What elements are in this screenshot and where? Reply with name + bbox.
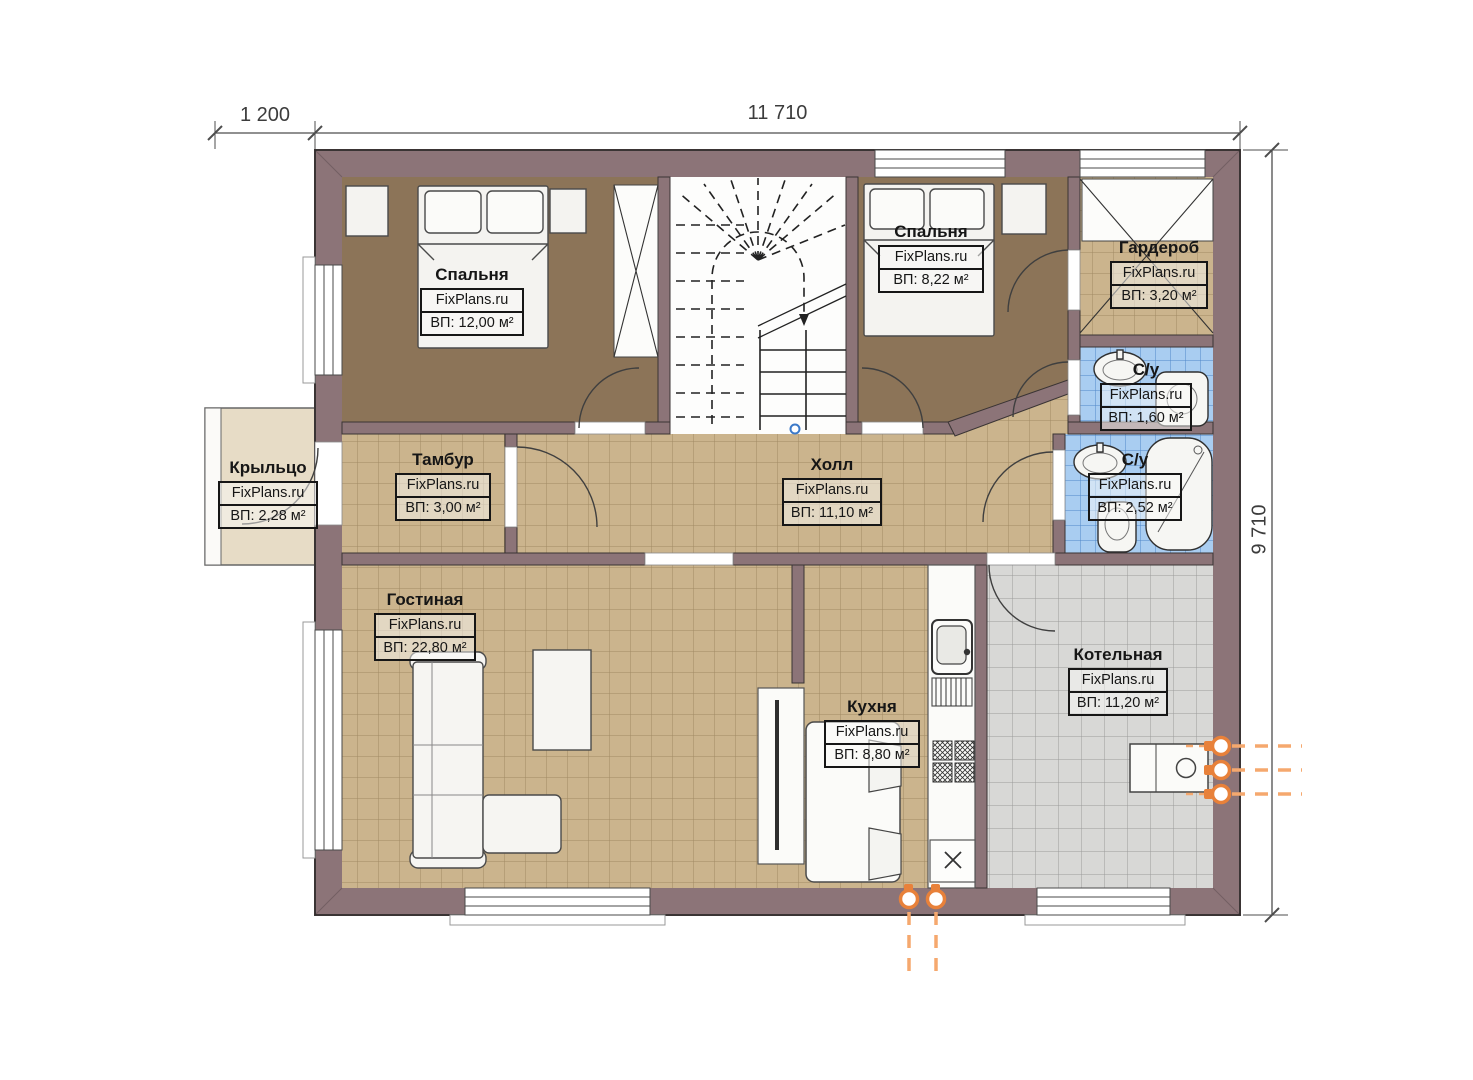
room-area: ВП: 3,20 м²	[1110, 284, 1208, 309]
room-label-bedroom-1: Спальня FixPlans.ru ВП: 12,00 м²	[420, 265, 524, 336]
dimension-top-main: 11 710	[315, 102, 1240, 125]
brand-watermark: FixPlans.ru	[878, 245, 984, 270]
room-name: Гостиная	[387, 590, 464, 610]
room-label-boiler: Котельная FixPlans.ru ВП: 11,20 м²	[1068, 645, 1168, 716]
room-label-bathroom-1: С/у FixPlans.ru ВП: 1,60 м²	[1100, 360, 1192, 431]
brand-watermark: FixPlans.ru	[824, 720, 920, 745]
room-label-vestibule: Тамбур FixPlans.ru ВП: 3,00 м²	[395, 450, 491, 521]
room-label-hall: Холл FixPlans.ru ВП: 11,10 м²	[782, 455, 882, 526]
room-label-living: Гостиная FixPlans.ru ВП: 22,80 м²	[374, 590, 476, 661]
room-name: Кухня	[847, 697, 897, 717]
room-name: Котельная	[1073, 645, 1162, 665]
brand-watermark: FixPlans.ru	[420, 288, 524, 313]
room-label-wardrobe: Гардероб FixPlans.ru ВП: 3,20 м²	[1110, 238, 1208, 309]
room-area: ВП: 11,20 м²	[1068, 691, 1168, 716]
room-label-bedroom-2: Спальня FixPlans.ru ВП: 8,22 м²	[878, 222, 984, 293]
room-area: ВП: 3,00 м²	[395, 496, 491, 521]
room-name: Крыльцо	[229, 458, 306, 478]
brand-watermark: FixPlans.ru	[1100, 383, 1192, 408]
room-area: ВП: 12,00 м²	[420, 311, 524, 336]
room-label-porch: Крыльцо FixPlans.ru ВП: 2,28 м²	[218, 458, 318, 529]
room-label-bathroom-2: С/у FixPlans.ru ВП: 2,52 м²	[1088, 450, 1182, 521]
room-area: ВП: 8,22 м²	[878, 268, 984, 293]
dimension-top-left: 1 200	[215, 104, 315, 127]
brand-watermark: FixPlans.ru	[1110, 261, 1208, 286]
floor-plan: 1 200 11 710 9 710 Спальня FixPlans.ru В…	[0, 0, 1473, 1080]
room-name: Спальня	[435, 265, 508, 285]
brand-watermark: FixPlans.ru	[374, 613, 476, 638]
room-name: С/у	[1122, 450, 1148, 470]
brand-watermark: FixPlans.ru	[1088, 473, 1182, 498]
room-name: Спальня	[894, 222, 967, 242]
room-label-kitchen: Кухня FixPlans.ru ВП: 8,80 м²	[824, 697, 920, 768]
brand-watermark: FixPlans.ru	[395, 473, 491, 498]
room-area: ВП: 8,80 м²	[824, 743, 920, 768]
room-name: Холл	[811, 455, 854, 475]
room-area: ВП: 2,28 м²	[218, 504, 318, 529]
brand-watermark: FixPlans.ru	[782, 478, 882, 503]
bedroom-1-closet	[614, 185, 658, 357]
room-name: Тамбур	[412, 450, 474, 470]
boiler-unit	[1130, 744, 1208, 792]
room-area: ВП: 22,80 м²	[374, 636, 476, 661]
room-name: Гардероб	[1119, 238, 1199, 258]
dimension-right-side: 9 710	[1249, 470, 1272, 590]
room-area: ВП: 2,52 м²	[1088, 496, 1182, 521]
room-area: ВП: 1,60 м²	[1100, 406, 1192, 431]
room-name: С/у	[1133, 360, 1159, 380]
brand-watermark: FixPlans.ru	[218, 481, 318, 506]
brand-watermark: FixPlans.ru	[1068, 668, 1168, 693]
room-area: ВП: 11,10 м²	[782, 501, 882, 526]
tv-stand	[758, 688, 804, 864]
